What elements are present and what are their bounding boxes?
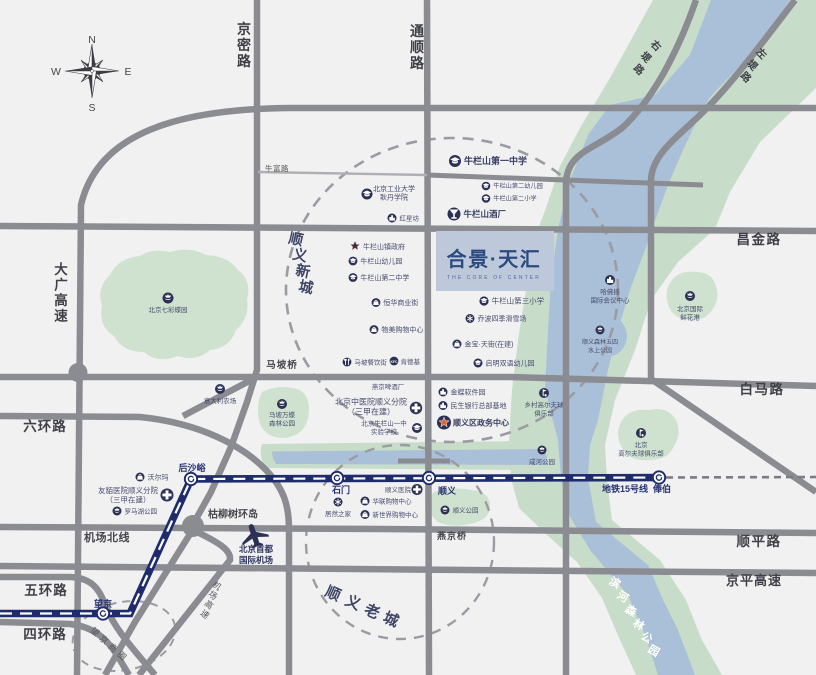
svg-text:咸河公园: 咸河公园 — [529, 457, 555, 466]
svg-text:北京: 北京 — [635, 440, 649, 449]
svg-text:燕京啤酒厂: 燕京啤酒厂 — [372, 382, 405, 391]
svg-text:W: W — [51, 66, 61, 78]
svg-text:昌金路: 昌金路 — [737, 231, 782, 247]
svg-text:KFC: KFC — [391, 360, 399, 364]
svg-text:高: 高 — [54, 292, 68, 308]
svg-text:牛栏山幼儿园: 牛栏山幼儿园 — [360, 257, 402, 266]
svg-text:顺义区政务中心: 顺义区政务中心 — [453, 418, 509, 428]
svg-text:金宝·天街(在建): 金宝·天街(在建) — [465, 340, 514, 349]
svg-text:华联购物中心: 华联购物中心 — [373, 496, 413, 505]
svg-text:石门: 石门 — [331, 484, 350, 495]
svg-text:意大利农场: 意大利农场 — [204, 396, 237, 405]
svg-text:马坡万蝶: 马坡万蝶 — [269, 410, 296, 419]
svg-text:居然之家: 居然之家 — [325, 509, 352, 518]
svg-text:实验学校: 实验学校 — [371, 427, 398, 436]
svg-text:北京中医院顺义分院: 北京中医院顺义分院 — [335, 397, 407, 407]
svg-text:国际机场: 国际机场 — [239, 555, 274, 565]
svg-text:燕京桥: 燕京桥 — [437, 530, 467, 541]
svg-text:乔波四季滑雪场: 乔波四季滑雪场 — [478, 314, 527, 323]
svg-text:牛栏山第二小学: 牛栏山第二小学 — [493, 195, 536, 203]
svg-text:友貊医院顺义分院: 友貊医院顺义分院 — [98, 485, 158, 495]
svg-text:通: 通 — [410, 23, 424, 39]
svg-text:马坡桥: 马坡桥 — [266, 359, 298, 371]
svg-text:京平高速: 京平高速 — [726, 573, 782, 588]
svg-text:高尔夫球俱乐部: 高尔夫球俱乐部 — [618, 449, 664, 458]
svg-text:沃尔玛: 沃尔玛 — [148, 473, 169, 482]
svg-text:牛栏山镇政府: 牛栏山镇政府 — [363, 242, 405, 251]
svg-text:鲜花港: 鲜花港 — [680, 313, 700, 322]
svg-text:罗马湖公园: 罗马湖公园 — [125, 506, 158, 515]
svg-text:牛栏山第一中学: 牛栏山第一中学 — [464, 155, 527, 166]
svg-text:路: 路 — [410, 55, 425, 71]
svg-text:大: 大 — [54, 261, 68, 277]
svg-text:顺义森林五四: 顺义森林五四 — [582, 338, 618, 346]
svg-text:牛富路: 牛富路 — [265, 163, 289, 173]
svg-text:北京七彩蝶园: 北京七彩蝶园 — [149, 305, 188, 314]
svg-text:肯德基: 肯德基 — [401, 357, 421, 366]
svg-text:（三甲在建）: （三甲在建） — [347, 407, 395, 417]
svg-text:四环路: 四环路 — [23, 626, 67, 642]
svg-text:后沙峪: 后沙峪 — [178, 462, 206, 473]
svg-text:牛栏山第三小学: 牛栏山第三小学 — [492, 296, 545, 306]
svg-text:新世界购物中心: 新世界购物中心 — [373, 510, 419, 519]
svg-text:红星坊: 红星坊 — [400, 213, 420, 222]
svg-text:五环路: 五环路 — [24, 582, 68, 598]
svg-text:北京首都: 北京首都 — [239, 544, 274, 554]
svg-text:密: 密 — [236, 37, 251, 53]
svg-text:THE CORE OF CENTER: THE CORE OF CENTER — [447, 275, 541, 281]
svg-text:广: 广 — [54, 277, 68, 293]
svg-text:N: N — [88, 34, 96, 46]
svg-text:地铁15号线: 地铁15号线 — [602, 483, 648, 494]
svg-text:俸伯: 俸伯 — [652, 483, 671, 494]
svg-text:北京国际: 北京国际 — [677, 304, 704, 313]
svg-text:森林公园: 森林公园 — [269, 419, 295, 428]
svg-text:六环路: 六环路 — [23, 418, 67, 434]
svg-text:E: E — [124, 66, 131, 78]
svg-text:顺平路: 顺平路 — [737, 533, 782, 549]
svg-text:牛栏山酒厂: 牛栏山酒厂 — [464, 209, 507, 219]
svg-text:金蝶软件园: 金蝶软件园 — [451, 388, 486, 397]
svg-text:京: 京 — [237, 21, 251, 37]
svg-text:白马路: 白马路 — [740, 381, 785, 397]
svg-text:速: 速 — [54, 308, 68, 324]
svg-text:望京: 望京 — [94, 598, 112, 609]
svg-text:恒华商业街: 恒华商业街 — [383, 298, 418, 307]
svg-text:合景·天汇: 合景·天汇 — [447, 247, 542, 271]
svg-text:北京工业大学: 北京工业大学 — [373, 184, 415, 193]
svg-text:机场北线: 机场北线 — [84, 530, 130, 544]
svg-text:北京牛栏山一中: 北京牛栏山一中 — [361, 419, 407, 428]
svg-text:马坡餐饮街: 马坡餐饮街 — [354, 357, 387, 366]
svg-text:启明双语幼儿园: 启明双语幼儿园 — [486, 359, 535, 368]
svg-text:顺义: 顺义 — [438, 485, 457, 496]
svg-text:路: 路 — [237, 53, 252, 69]
svg-text:物美购物中心: 物美购物中心 — [381, 325, 423, 334]
svg-text:民生银行总部基地: 民生银行总部基地 — [451, 401, 507, 410]
svg-text:牛栏山第二中学: 牛栏山第二中学 — [360, 273, 409, 282]
svg-text:S: S — [88, 102, 95, 114]
svg-text:（三甲在建）: （三甲在建） — [106, 495, 151, 505]
svg-text:哈佛摇: 哈佛摇 — [600, 287, 620, 296]
svg-text:顺: 顺 — [410, 39, 424, 55]
svg-text:国际会议中心: 国际会议中心 — [591, 296, 631, 305]
svg-text:顺义医院: 顺义医院 — [385, 485, 412, 494]
svg-text:水上公园: 水上公园 — [588, 347, 612, 355]
svg-text:耿丹学院: 耿丹学院 — [380, 193, 408, 202]
svg-text:俱乐部: 俱乐部 — [534, 409, 554, 418]
svg-text:枯柳树环岛: 枯柳树环岛 — [208, 508, 258, 521]
svg-text:牛栏山第二幼儿园: 牛栏山第二幼儿园 — [493, 182, 543, 190]
svg-text:顺义公园: 顺义公园 — [453, 506, 479, 514]
svg-text:乡村高尔夫球: 乡村高尔夫球 — [525, 400, 565, 409]
